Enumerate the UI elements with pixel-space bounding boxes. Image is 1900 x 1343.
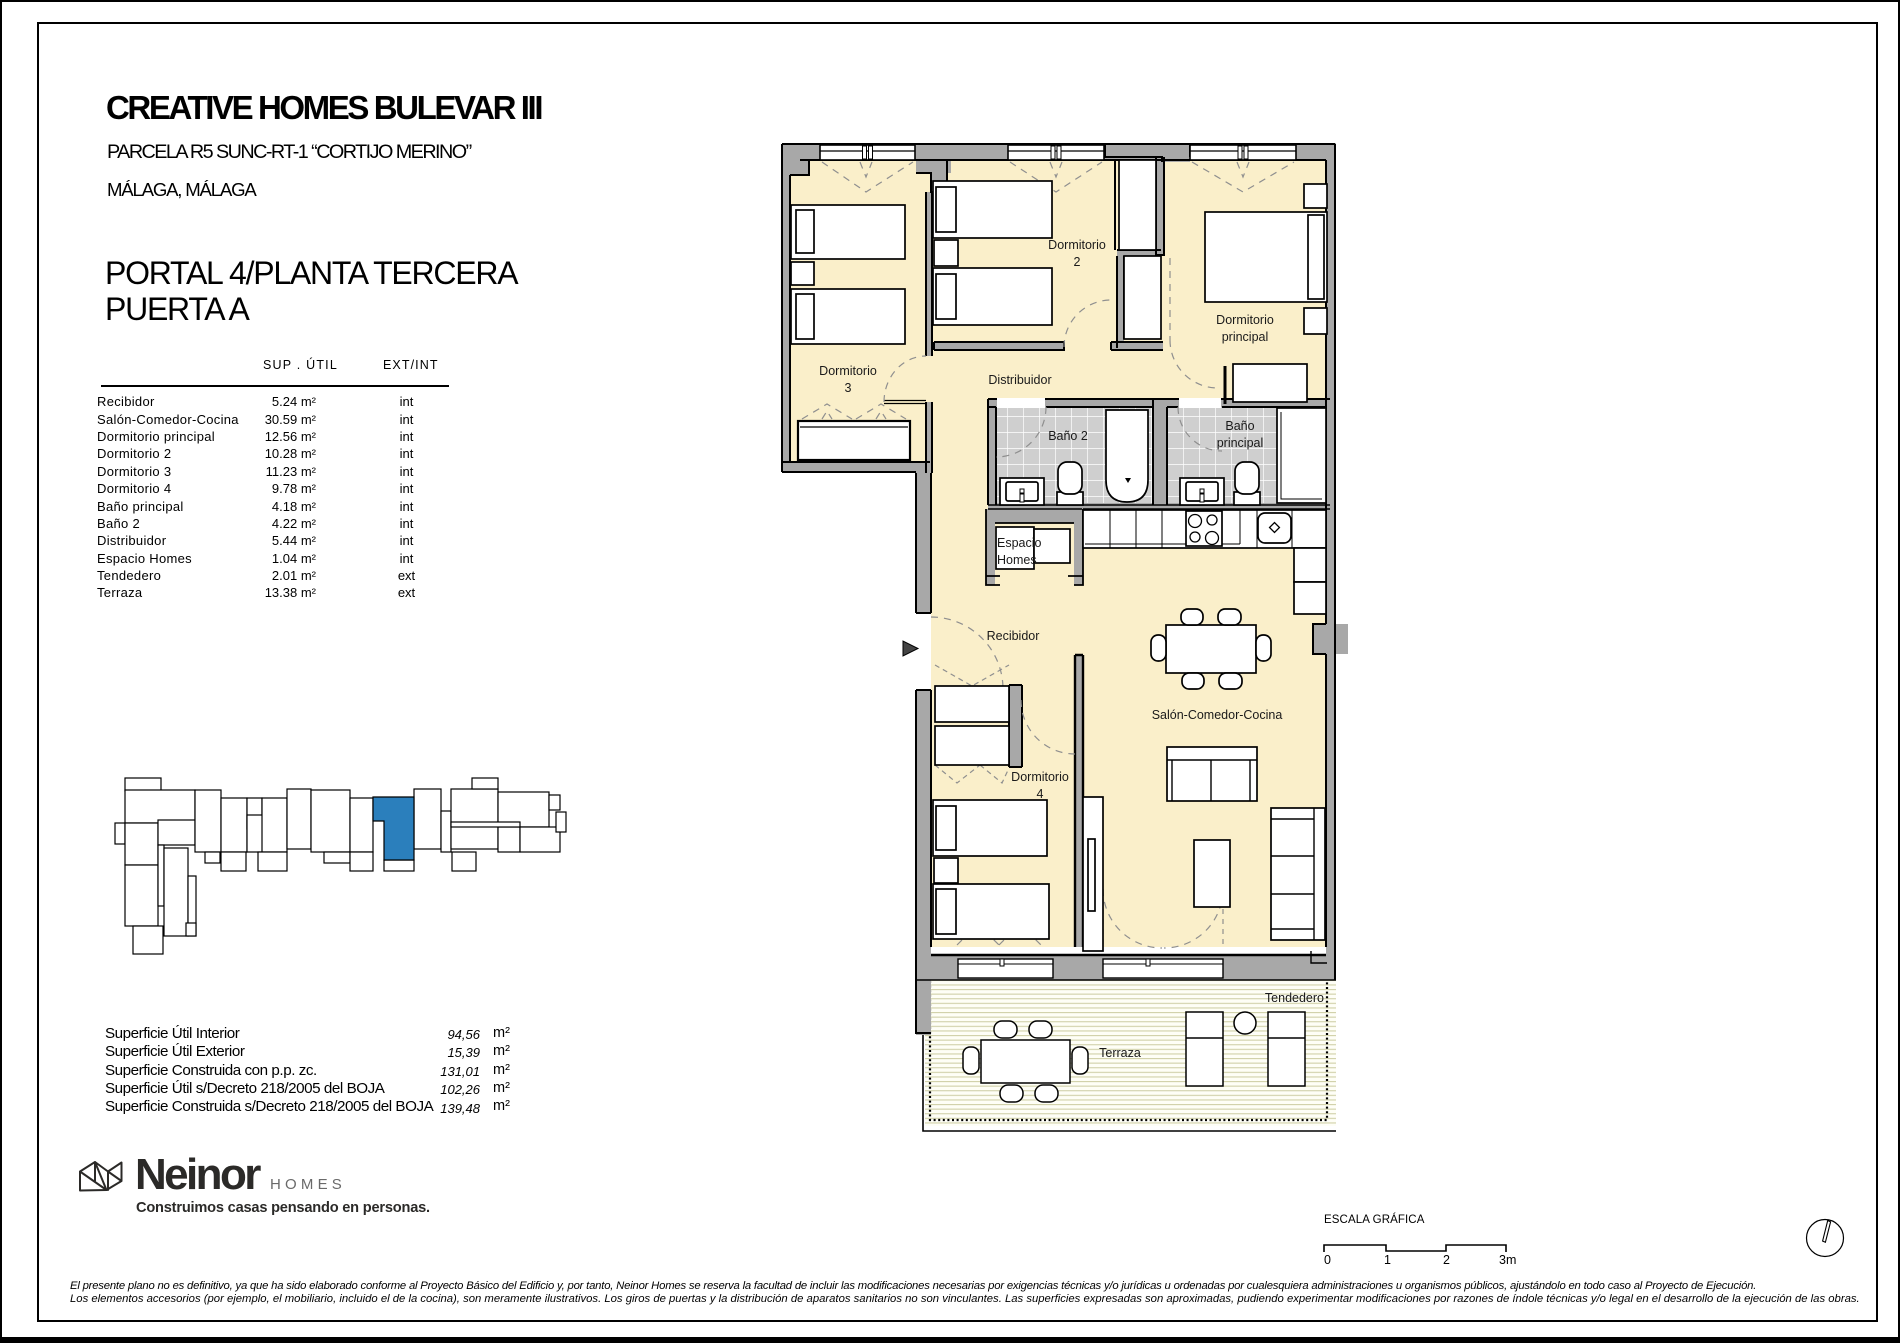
svg-text:Distribuidor: Distribuidor [988,373,1051,387]
svg-text:Salón-Comedor-Cocina: Salón-Comedor-Cocina [1152,708,1283,722]
svg-text:principal: principal [1222,330,1269,344]
svg-text:Dormitorio: Dormitorio [1216,313,1274,327]
svg-text:Baño: Baño [1225,419,1254,433]
svg-text:4: 4 [1037,787,1044,801]
svg-text:0: 0 [1324,1253,1331,1267]
svg-text:principal: principal [1217,436,1264,450]
svg-text:Espacio: Espacio [997,536,1042,550]
svg-text:Tendedero: Tendedero [1265,991,1324,1005]
svg-text:2: 2 [1074,255,1081,269]
svg-text:3: 3 [845,381,852,395]
svg-text:Dormitorio: Dormitorio [1048,238,1106,252]
svg-text:Dormitorio: Dormitorio [1011,770,1069,784]
svg-text:Terraza: Terraza [1099,1046,1141,1060]
svg-text:Baño 2: Baño 2 [1048,429,1088,443]
svg-text:3m: 3m [1499,1253,1516,1267]
svg-text:1: 1 [1384,1253,1391,1267]
svg-text:Recibidor: Recibidor [987,629,1040,643]
svg-text:2: 2 [1443,1253,1450,1267]
svg-text:Homes: Homes [997,553,1037,567]
svg-text:Dormitorio: Dormitorio [819,364,877,378]
